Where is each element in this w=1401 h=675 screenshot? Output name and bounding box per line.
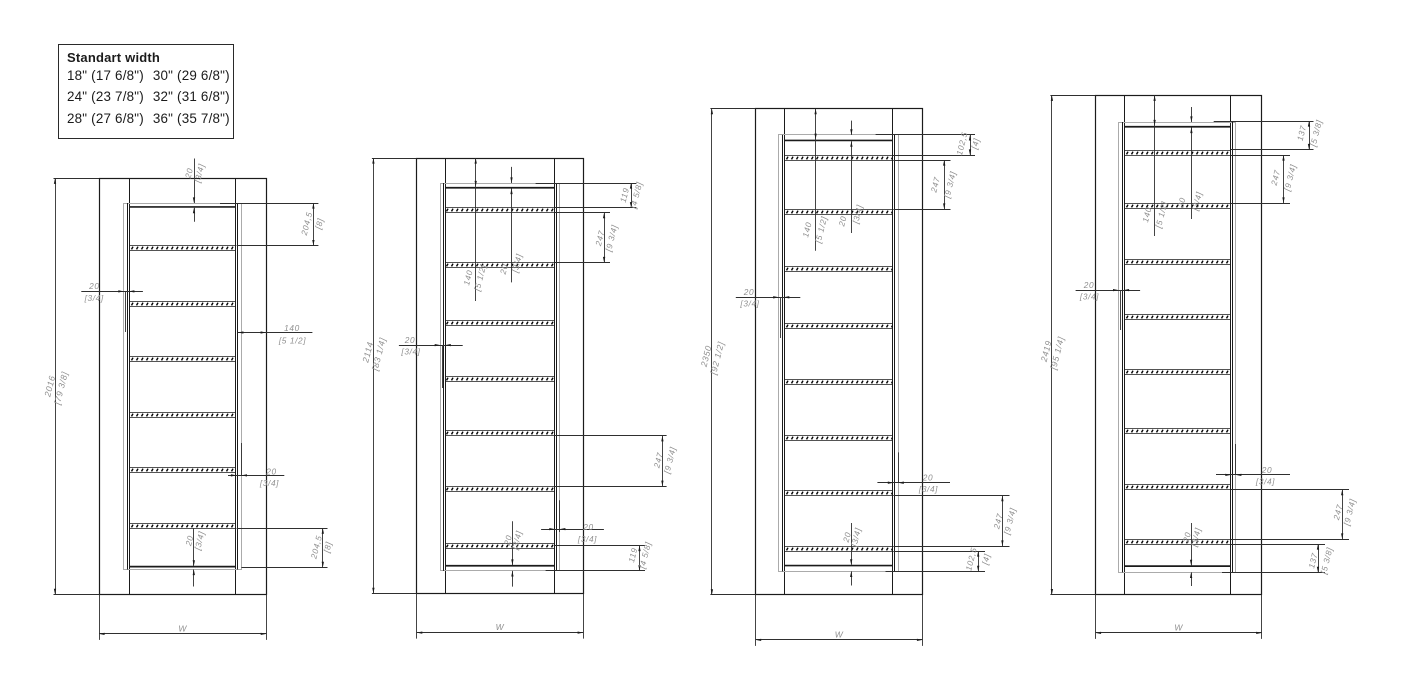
svg-text:20: 20: [88, 281, 99, 291]
svg-text:20: 20: [743, 287, 754, 297]
svg-text:20: 20: [404, 335, 415, 345]
svg-text:[4]: [4]: [980, 552, 993, 566]
svg-text:[3/4]: [3/4]: [577, 534, 597, 544]
svg-text:[3/4]: [3/4]: [400, 347, 420, 357]
svg-text:247: 247: [928, 176, 942, 195]
svg-text:20: 20: [922, 473, 933, 483]
svg-text:[9 3/4]: [9 3/4]: [661, 445, 678, 475]
svg-text:[3/4]: [3/4]: [1188, 526, 1203, 548]
svg-text:247: 247: [1269, 169, 1283, 188]
svg-text:20: 20: [582, 522, 593, 532]
svg-text:[8]: [8]: [321, 540, 334, 554]
svg-text:[5 3/8]: [5 3/8]: [1318, 546, 1335, 576]
svg-text:[3/4]: [3/4]: [918, 484, 938, 494]
svg-text:[3/4]: [3/4]: [84, 293, 104, 303]
svg-text:[79 3/8]: [79 3/8]: [52, 370, 70, 406]
svg-text:[3/4]: [3/4]: [848, 526, 863, 548]
svg-text:[9 3/4]: [9 3/4]: [1282, 163, 1299, 193]
svg-text:20: 20: [497, 263, 509, 277]
svg-text:[5 3/8]: [5 3/8]: [1308, 118, 1325, 148]
svg-text:[9 3/4]: [9 3/4]: [1001, 506, 1018, 536]
svg-text:[9 3/4]: [9 3/4]: [942, 170, 959, 200]
svg-text:[4 5/8]: [4 5/8]: [637, 540, 654, 570]
svg-text:20: 20: [836, 215, 848, 229]
svg-text:20: 20: [265, 467, 276, 477]
svg-text:[5 1/2]: [5 1/2]: [278, 336, 306, 346]
svg-text:137: 137: [1295, 124, 1308, 142]
svg-text:[4]: [4]: [969, 137, 982, 151]
svg-text:102,5: 102,5: [963, 546, 978, 571]
svg-text:140: 140: [284, 323, 300, 333]
svg-text:W: W: [178, 623, 187, 633]
svg-text:20: 20: [1261, 465, 1272, 475]
svg-text:[8]: [8]: [313, 217, 326, 231]
svg-text:[92 1/2]: [92 1/2]: [708, 340, 726, 376]
svg-text:W: W: [496, 622, 505, 632]
svg-text:[3/4]: [3/4]: [739, 298, 759, 308]
svg-text:20: 20: [1083, 280, 1094, 290]
svg-text:[3/4]: [3/4]: [259, 478, 279, 488]
svg-text:[3/4]: [3/4]: [1079, 291, 1099, 301]
svg-text:W: W: [1174, 622, 1183, 632]
svg-text:[83 1/4]: [83 1/4]: [370, 336, 388, 372]
svg-text:[95 1/4]: [95 1/4]: [1048, 335, 1066, 371]
svg-text:[4 5/8]: [4 5/8]: [628, 180, 645, 210]
svg-text:[9 3/4]: [9 3/4]: [1341, 497, 1358, 527]
svg-text:W: W: [835, 629, 844, 639]
svg-text:[3/4]: [3/4]: [192, 530, 207, 552]
svg-text:140: 140: [800, 221, 813, 239]
svg-text:137: 137: [1306, 552, 1319, 570]
svg-text:[9 3/4]: [9 3/4]: [603, 223, 620, 253]
svg-text:204,5: 204,5: [299, 211, 315, 237]
svg-text:[3/4]: [3/4]: [850, 203, 865, 225]
svg-text:[3/4]: [3/4]: [1255, 476, 1275, 486]
